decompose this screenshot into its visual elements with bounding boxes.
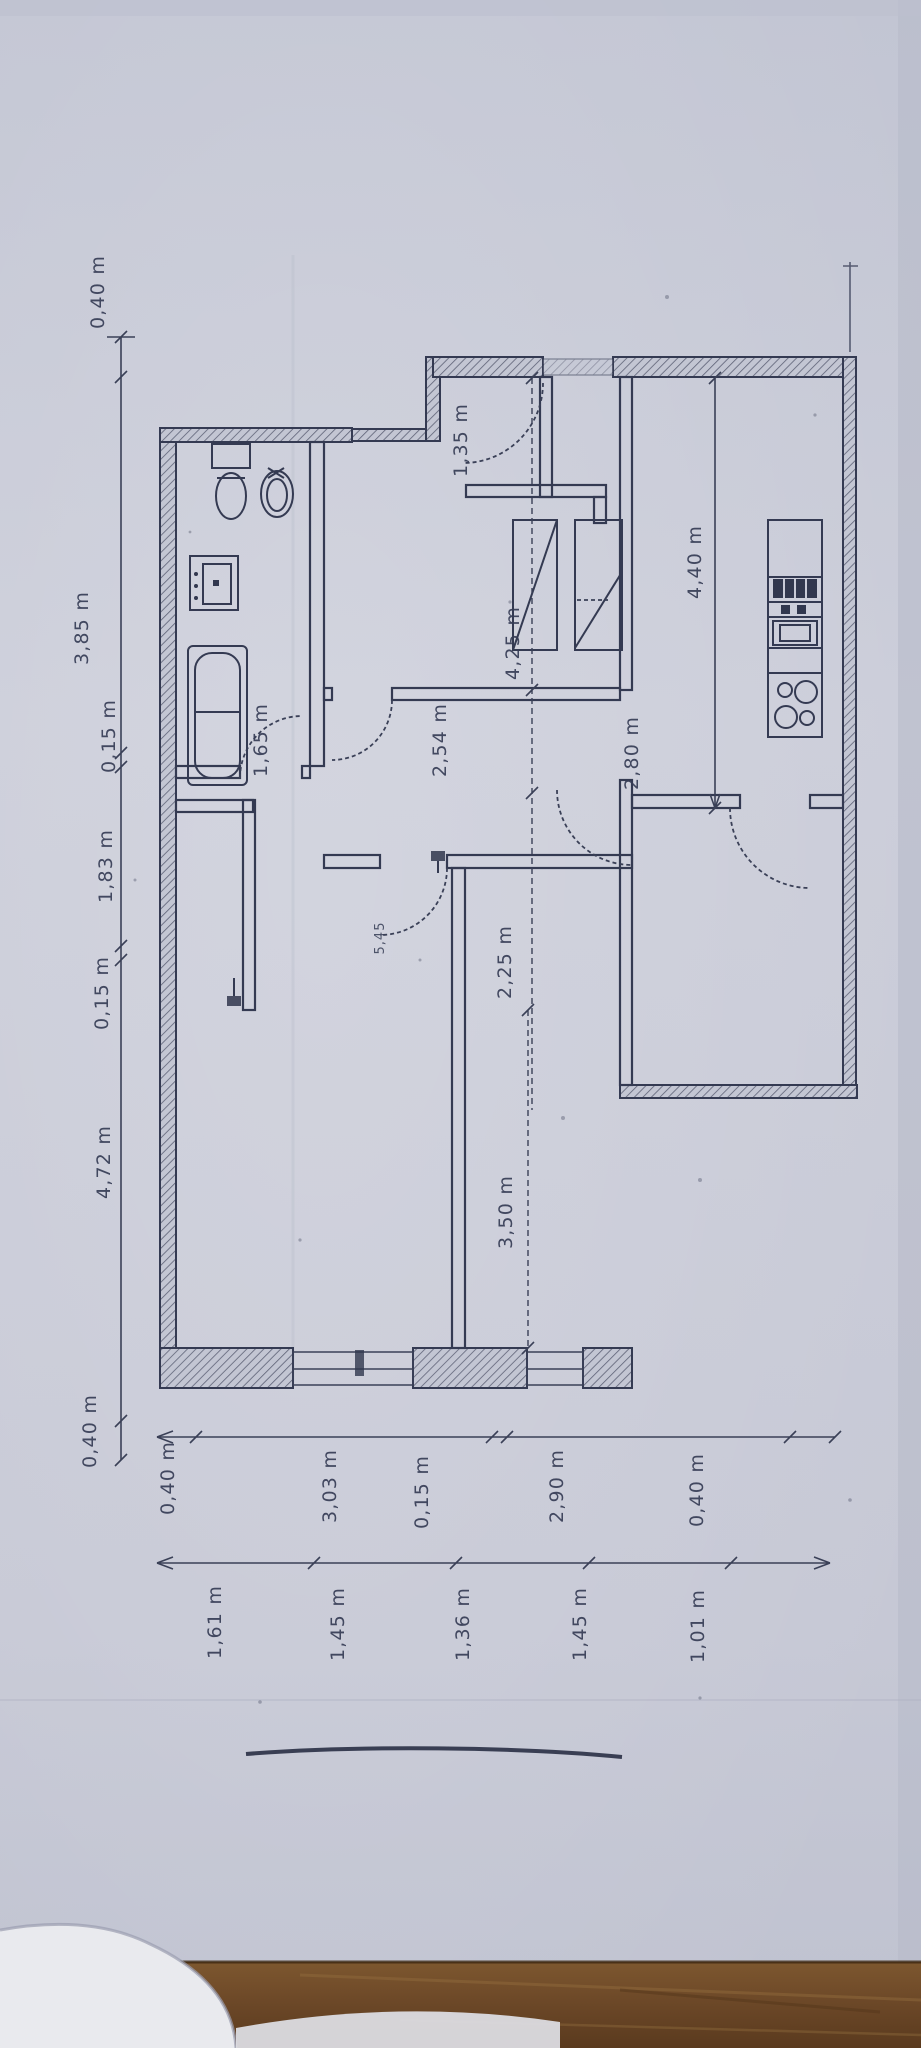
wall-bottom-c: [583, 1348, 632, 1388]
wall-bottom-right: [620, 1085, 857, 1098]
wall-top-right-b: [613, 357, 843, 377]
dim-label-left-3: 1,83 m: [95, 829, 117, 903]
paper-edge-shade-right: [898, 0, 921, 2048]
paper-edge-shade-top: [0, 0, 921, 16]
photographed-floor-plan: 0,40 m 3,85 m 0,15 m 1,83 m 0,15 m 4,72 …: [0, 0, 921, 2048]
wall-right: [843, 357, 856, 1098]
wall-bottom-b: [413, 1348, 527, 1388]
dim-label-bottom-inner-2: 1,36 m: [452, 1587, 474, 1661]
dim-label-left-6: 0,40 m: [79, 1394, 101, 1468]
dim-label-left-4: 0,15 m: [91, 956, 113, 1030]
dim-label-bottom-outer-0: 0,40 m: [157, 1441, 179, 1515]
paper-background: [0, 0, 921, 2048]
dim-label-bottom-outer-2: 0,15 m: [411, 1455, 433, 1529]
radiator-symbol-b: [431, 851, 445, 861]
washing-machine-dot: [213, 580, 219, 586]
radiator-symbol-a: [227, 996, 241, 1006]
wall-left: [160, 428, 176, 1388]
dim-label-left-1: 3,85 m: [71, 591, 93, 665]
dim-label-bottom-inner-0: 1,61 m: [204, 1585, 226, 1659]
dim-label-bottom-outer-3: 2,90 m: [546, 1449, 568, 1523]
room-label-kitchen: 4,40 m: [684, 525, 706, 599]
wall-bottom-a: [160, 1348, 293, 1388]
dim-label-left-5: 4,72 m: [93, 1125, 115, 1199]
entry-threshold: [543, 359, 613, 375]
room-label-room-bottom: 3,50 m: [495, 1175, 517, 1249]
wall-top-left: [160, 428, 352, 442]
room-label-hall-small: 5,45: [373, 922, 388, 955]
dim-label-bottom-outer-1: 3,03 m: [319, 1449, 341, 1523]
kitchen-cabinet-dot-b: [797, 605, 806, 614]
wall-top-window-strip: [352, 429, 433, 441]
sill-mark: [355, 1350, 364, 1376]
dim-label-bottom-outer-4: 0,40 m: [686, 1453, 708, 1527]
room-label-bath-passage: 1,65 m: [250, 703, 272, 777]
room-label-hall-upper: 2,54 m: [429, 703, 451, 777]
room-label-room-right: 2,80 m: [621, 716, 643, 790]
dim-label-bottom-inner-4: 1,01 m: [687, 1589, 709, 1663]
kitchen-cabinet-dot-a: [781, 605, 790, 614]
dim-label-bottom-inner-3: 1,45 m: [569, 1587, 591, 1661]
dim-label-left-0: 0,40 m: [87, 255, 109, 329]
room-label-room-top: 4,25 m: [502, 606, 524, 680]
dim-label-bottom-inner-1: 1,45 m: [327, 1587, 349, 1661]
wall-top-right-a: [433, 357, 543, 377]
room-label-entry: 1,35 m: [450, 403, 472, 477]
room-label-hall-lower: 2,25 m: [494, 925, 516, 999]
dim-label-left-2: 0,15 m: [98, 699, 120, 773]
